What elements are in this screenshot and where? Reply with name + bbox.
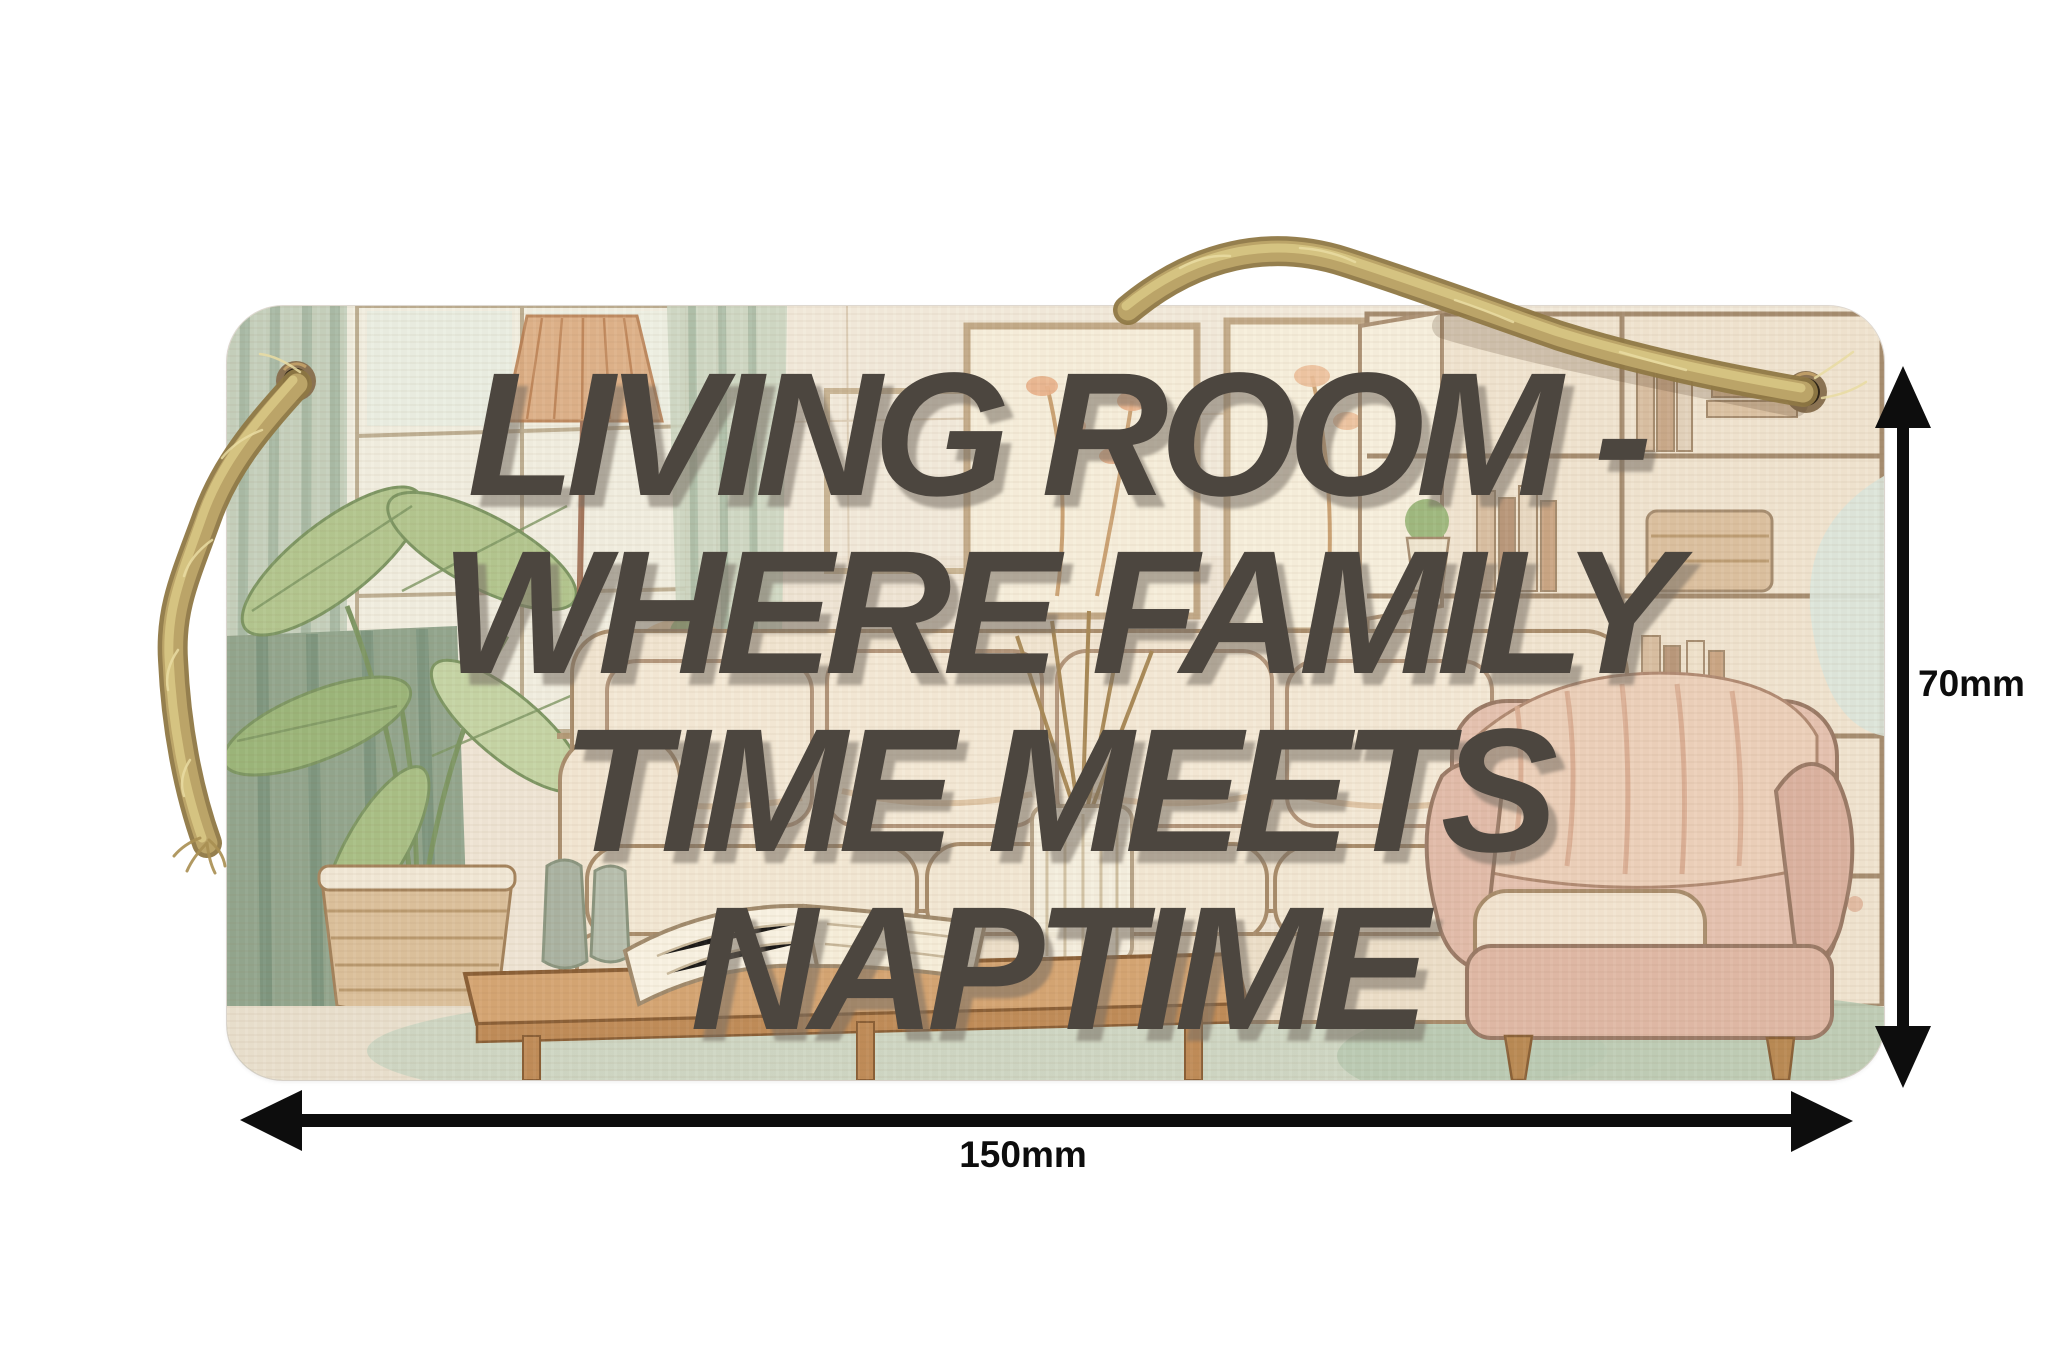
sign-quote: LIVING ROOM - WHERE FAMILY TIME MEETS NA… <box>227 346 1884 1058</box>
sign-line-2: WHERE FAMILY <box>227 524 1884 702</box>
sign-line-3: TIME MEETS <box>227 702 1884 880</box>
sign-line-4: NAPTIME <box>227 880 1884 1058</box>
height-dimension-label: 70mm <box>1918 665 2025 702</box>
sign-line-1: LIVING ROOM - <box>227 346 1884 524</box>
wooden-sign: LIVING ROOM - WHERE FAMILY TIME MEETS NA… <box>227 306 1884 1080</box>
product-photo: LIVING ROOM - WHERE FAMILY TIME MEETS NA… <box>0 0 2048 1365</box>
width-dimension-label: 150mm <box>959 1136 1087 1173</box>
